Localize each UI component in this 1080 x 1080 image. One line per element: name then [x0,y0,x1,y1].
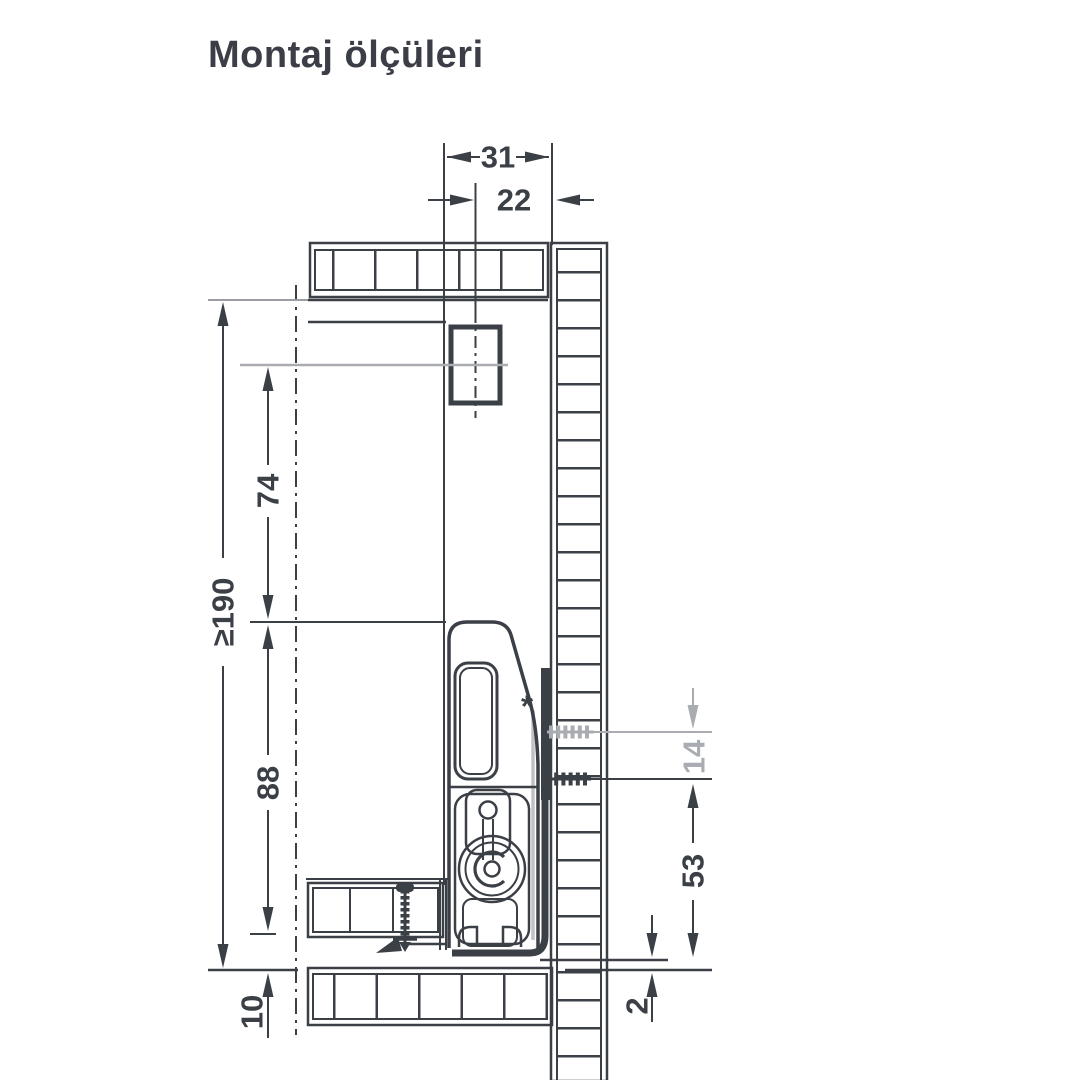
dimension-label-190: ≥190 [206,578,241,647]
cabinet-side-panel [551,243,607,1080]
dimension-label-88: 88 [251,766,286,800]
dimension-label-2: 2 [620,997,655,1014]
dimension-label-10: 10 [235,995,270,1029]
drawer-side-profile [449,622,538,948]
dimension-14 [594,688,712,732]
dimension-label-22: 22 [497,183,531,218]
drawer-bottom-panel [306,879,448,950]
montage-drawing-page: Montaj ölçüleri [0,0,1080,1080]
mounting-dimensions-diagram: 31 22 ≥190 74 88 10 14 53 2 * [0,0,1080,1080]
asterisk-annotation: * [521,689,534,724]
drawer-bottom-screw-icon [376,884,446,953]
dimension-label-53: 53 [676,854,711,888]
dimension-label-31: 31 [481,140,515,175]
dimension-label-14: 14 [677,739,712,774]
cabinet-top-panel [308,243,548,322]
dimension-label-74: 74 [251,473,286,508]
cabinet-bottom-panel [308,968,552,1025]
